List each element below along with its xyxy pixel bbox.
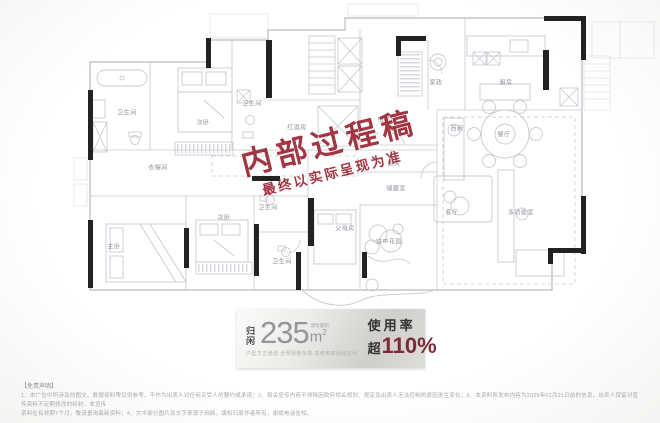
area-row: 归闲 235 建筑面积m2 <box>246 320 358 346</box>
area-value: 235 <box>260 320 309 346</box>
room-label: 储藏室 <box>386 184 406 193</box>
outer-boundary-layer <box>90 18 582 290</box>
room-label: 衣帽间 <box>148 163 168 172</box>
neighbor-structures-layer <box>74 4 654 206</box>
usage-row: 超 110% <box>368 333 437 359</box>
disclaimer-line1: 1、本广告中所涉及的图文、数据资料等仅供参考，不作为出卖人对任何买受人的要约或承… <box>21 392 639 410</box>
room-label: 玄关 <box>387 159 400 168</box>
floorplan-flyer: 卫生间次卧卫生间红酒房电梯厅玄关储藏室家政厨房西厨餐厅客厅多功能室父母房空中花园… <box>0 0 660 423</box>
room-label: 客厅 <box>445 208 458 217</box>
room-label: 西厨 <box>450 124 463 133</box>
room-label: 空中花园 <box>376 237 402 246</box>
floorplan-drawing <box>0 0 660 310</box>
room-label: 主卧 <box>107 242 120 251</box>
area-note: 建筑面积 <box>311 323 329 329</box>
project-name: 归闲 <box>246 326 257 346</box>
disclaimer-line2: 资料在有效期7个月，敬请垂询最新资料；4、文中部分图片及文字来源于网络，版权归原… <box>21 410 639 419</box>
disclaimer: 【免责声明】 1、本广告中所涉及的图文、数据资料等仅供参考，不作为出卖人对任何买… <box>21 381 639 418</box>
room-label: 餐厅 <box>497 130 510 139</box>
black-walls-layer <box>88 16 586 290</box>
banner-left: 归闲 235 建筑面积m2 户型方正通透 全明规整布局 高使用率阔绰空间 <box>246 320 358 357</box>
room-label: 卫生间 <box>117 108 137 117</box>
room-label: 电梯厅 <box>377 115 397 124</box>
area-superscript: 2 <box>322 328 326 337</box>
usage-prefix: 超 <box>368 338 381 357</box>
room-label: 多功能室 <box>508 208 534 217</box>
partition-layer <box>90 18 582 290</box>
room-label: 卫生间 <box>242 99 262 108</box>
core-stairs-elevators <box>309 36 362 94</box>
disclaimer-title: 【免责声明】 <box>21 381 639 390</box>
room-label: 厨房 <box>499 78 512 87</box>
room-label: 次卧 <box>196 118 209 127</box>
room-label: 父母房 <box>335 224 355 233</box>
usage-label: 使用率 <box>368 318 437 334</box>
area-banner: 归闲 235 建筑面积m2 户型方正通透 全明规整布局 高使用率阔绰空间 使用率… <box>237 309 425 368</box>
area-unit-wrap: 建筑面积m2 <box>310 328 327 346</box>
room-label: 次卧 <box>217 213 230 222</box>
room-label: 卫生间 <box>258 203 278 212</box>
dashed-guide-layer <box>212 117 575 284</box>
banner-right: 使用率 超 110% <box>368 318 437 360</box>
usage-value: 110% <box>382 333 437 359</box>
area-unit: m <box>310 328 323 345</box>
banner-tagline: 户型方正通透 全明规整布局 高使用率阔绰空间 <box>246 350 358 357</box>
room-label: 家政 <box>429 78 442 87</box>
room-label: 卫生间 <box>272 257 292 266</box>
room-label: 红酒房 <box>287 123 307 132</box>
